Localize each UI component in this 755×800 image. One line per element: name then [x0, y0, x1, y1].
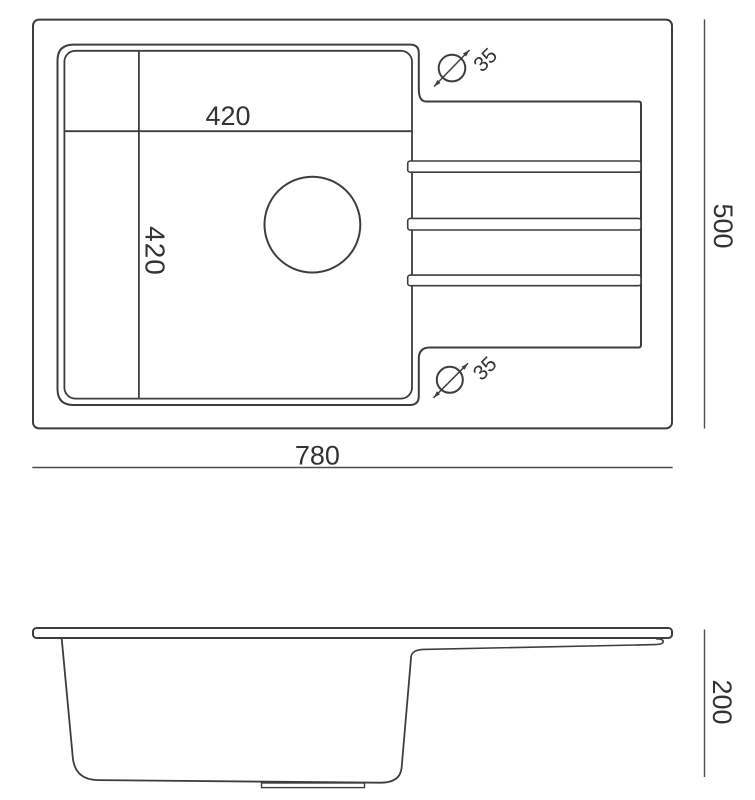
svg-text:200: 200	[707, 679, 737, 724]
svg-text:780: 780	[295, 441, 340, 471]
svg-text:500: 500	[708, 203, 738, 248]
svg-text:420: 420	[139, 226, 170, 276]
svg-text:420: 420	[205, 101, 250, 131]
svg-text:35: 35	[469, 352, 502, 385]
svg-text:35: 35	[469, 44, 502, 77]
